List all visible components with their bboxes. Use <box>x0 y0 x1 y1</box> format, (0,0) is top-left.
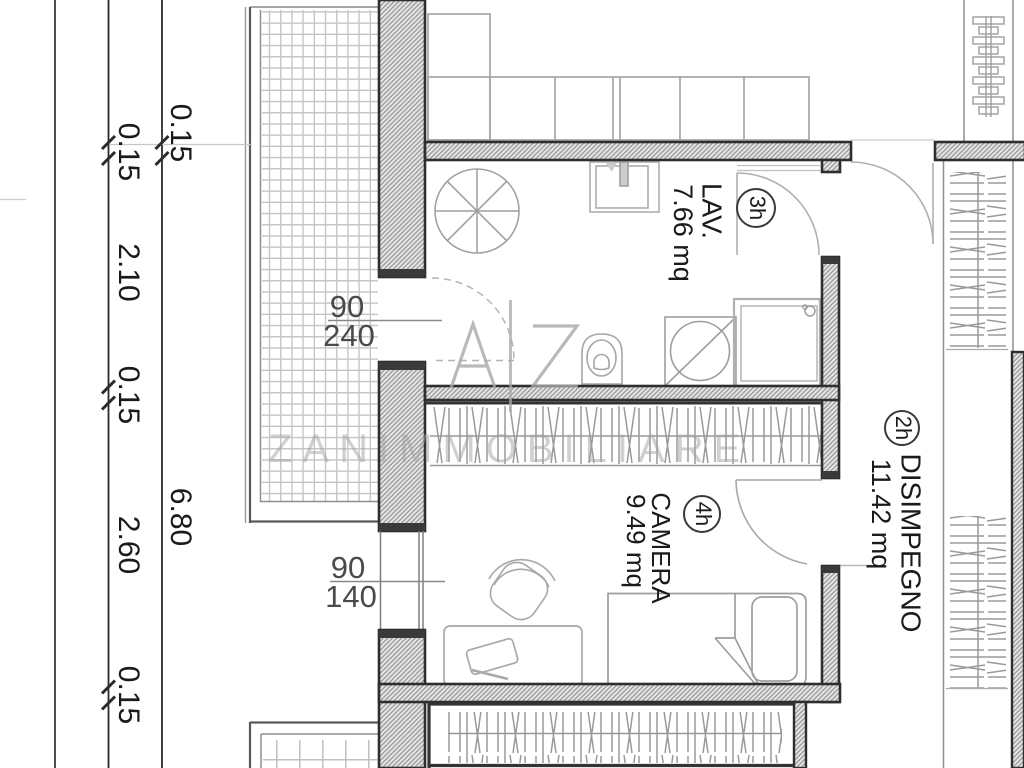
svg-text:ZANIMMOBILIARE: ZANIMMOBILIARE <box>268 427 750 471</box>
svg-text:4h: 4h <box>691 502 716 526</box>
svg-text:140: 140 <box>325 579 377 614</box>
svg-text:2.10: 2.10 <box>112 243 145 301</box>
svg-text:240: 240 <box>323 318 375 353</box>
svg-text:0.15: 0.15 <box>164 104 197 162</box>
svg-text:3h: 3h <box>745 196 770 220</box>
svg-text:7.66 mq: 7.66 mq <box>668 184 698 282</box>
svg-text:0.15: 0.15 <box>112 366 145 424</box>
svg-text:9.49 mq: 9.49 mq <box>621 494 651 588</box>
svg-text:0.15: 0.15 <box>112 666 145 724</box>
svg-text:11.42 mq: 11.42 mq <box>866 459 896 570</box>
svg-text:LAV.: LAV. <box>697 183 728 239</box>
svg-text:6.80: 6.80 <box>164 488 197 546</box>
svg-text:0.15: 0.15 <box>112 123 145 181</box>
svg-text:2h: 2h <box>891 416 916 440</box>
svg-text:2.60: 2.60 <box>112 516 145 574</box>
svg-text:DISIMPEGNO: DISIMPEGNO <box>896 454 927 633</box>
